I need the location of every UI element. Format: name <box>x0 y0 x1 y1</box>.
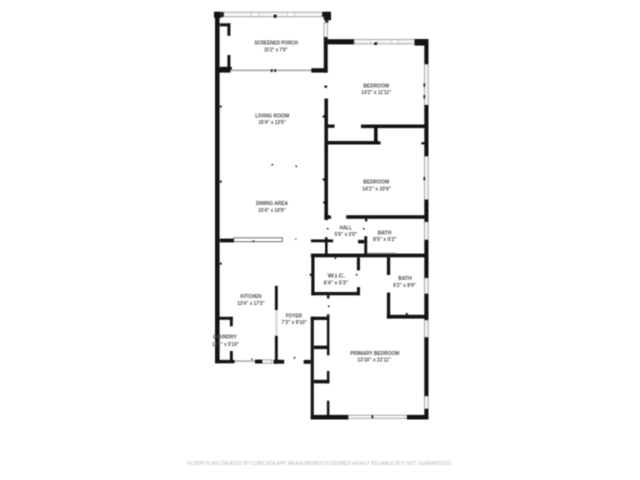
svg-text:W.I.C.: W.I.C. <box>328 273 346 279</box>
svg-text:SCREENED PORCH: SCREENED PORCH <box>254 41 298 47</box>
svg-text:11'1" x 5'10": 11'1" x 5'10" <box>212 342 239 348</box>
svg-text:14'2" x 10'6": 14'2" x 10'6" <box>362 186 391 192</box>
svg-text:HALL: HALL <box>340 225 353 231</box>
svg-text:FLOOR PLAN CREATED BY CUBICASA: FLOOR PLAN CREATED BY CUBICASA APP. MEAS… <box>188 461 453 467</box>
svg-text:FOYER: FOYER <box>286 314 303 320</box>
svg-text:6'4" x 5'3": 6'4" x 5'3" <box>324 280 349 286</box>
svg-text:5'2" x 8'9": 5'2" x 8'9" <box>393 283 416 289</box>
svg-text:LIVING ROOM: LIVING ROOM <box>255 113 289 119</box>
svg-text:DINING AREA: DINING AREA <box>256 201 289 207</box>
svg-text:15'4" x 10'9": 15'4" x 10'9" <box>258 208 286 214</box>
svg-text:LAUNDRY: LAUNDRY <box>213 335 237 341</box>
svg-text:8'5" x 5'2": 8'5" x 5'2" <box>373 237 397 243</box>
svg-text:14'2" x 11'11": 14'2" x 11'11" <box>361 90 391 96</box>
svg-text:BATH: BATH <box>378 230 392 236</box>
svg-text:KITCHEN: KITCHEN <box>240 294 261 300</box>
svg-text:PRIMARY BEDROOM: PRIMARY BEDROOM <box>350 351 399 357</box>
svg-text:15'2" x 7'9": 15'2" x 7'9" <box>264 48 288 54</box>
svg-text:BATH: BATH <box>398 276 412 282</box>
svg-text:15'4" x 13'5": 15'4" x 13'5" <box>258 120 286 126</box>
svg-text:13'10" x 22'11": 13'10" x 22'11" <box>357 358 391 364</box>
svg-text:BEDROOM: BEDROOM <box>363 180 389 186</box>
svg-text:BEDROOM: BEDROOM <box>363 83 389 89</box>
svg-text:7'3" x 9'10": 7'3" x 9'10" <box>282 320 308 326</box>
svg-text:5'5" x 3'0": 5'5" x 3'0" <box>335 232 358 238</box>
svg-text:13'4" x 17'3": 13'4" x 17'3" <box>237 301 265 307</box>
